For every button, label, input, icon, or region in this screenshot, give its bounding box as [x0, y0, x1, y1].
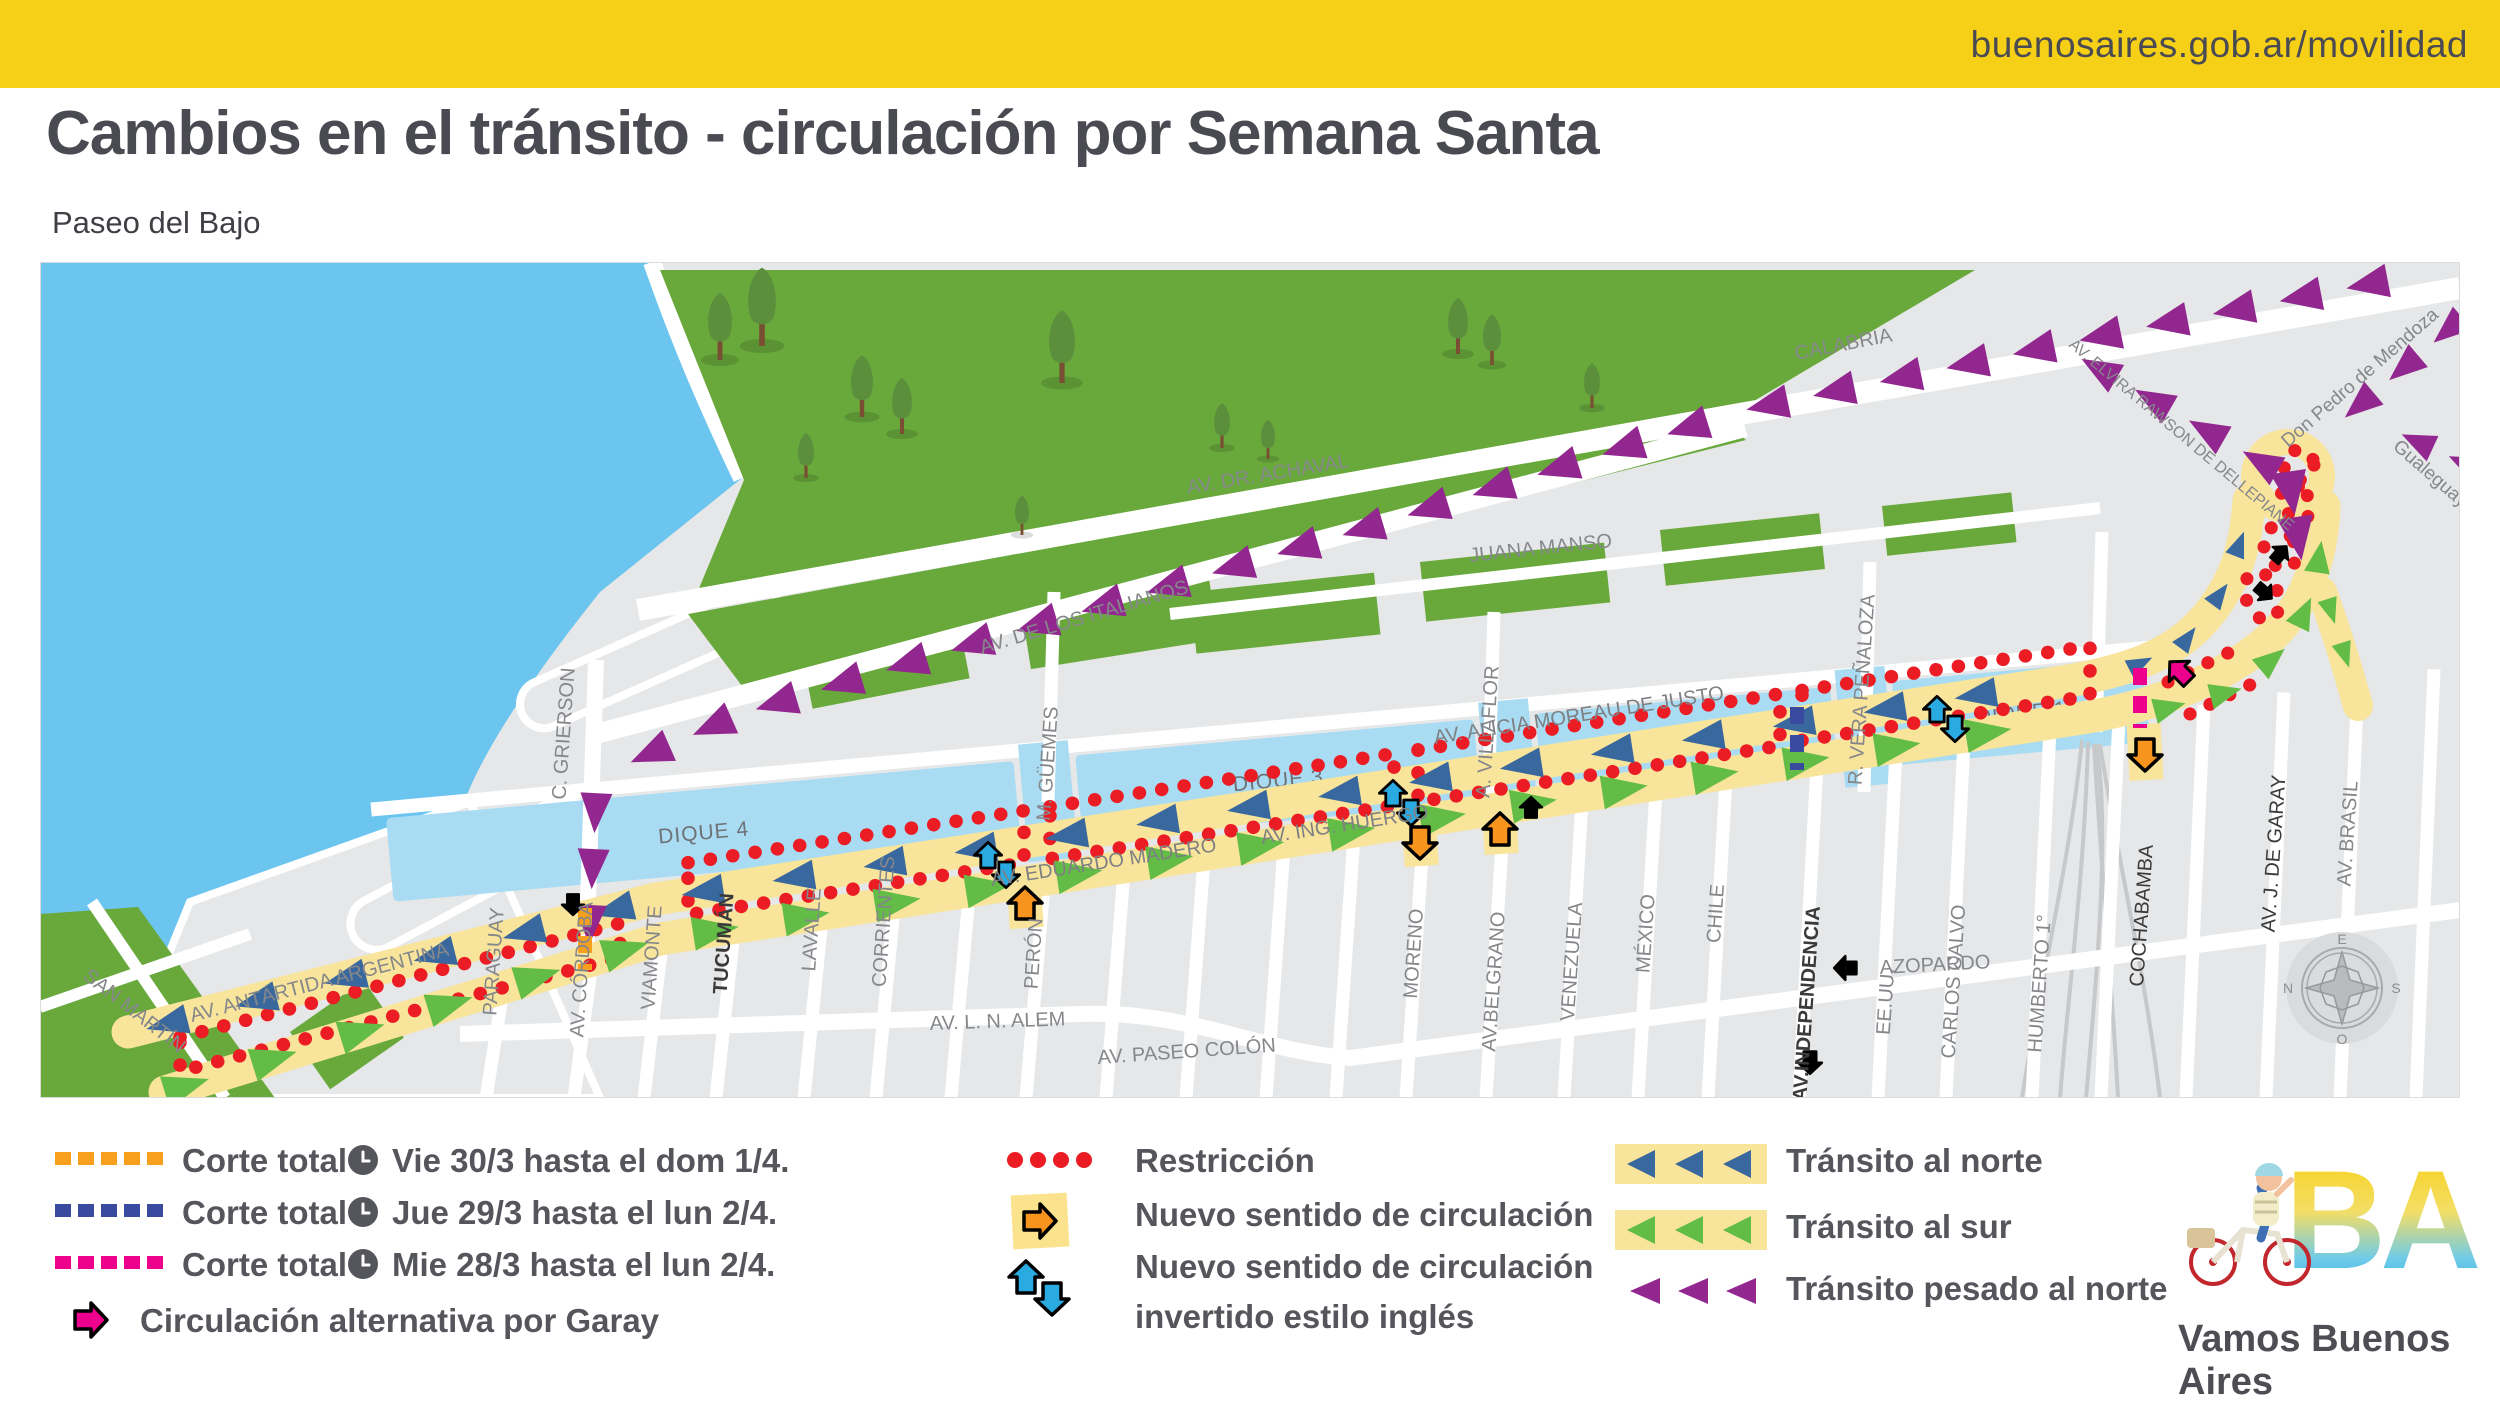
header-url[interactable]: buenosaires.gob.ar/movilidad [1971, 24, 2468, 66]
transit-south-label: Tránsito al sur [1786, 1208, 2012, 1246]
ba-logo: BA [2165, 1150, 2485, 1320]
corte-magenta-swatch [55, 1256, 167, 1269]
clock-icon [345, 1246, 381, 1282]
page-title: Cambios en el tránsito - circulación por… [46, 98, 1599, 169]
corte-orange-swatch [55, 1152, 167, 1165]
ba-letters: BA [2285, 1150, 2478, 1298]
corte-date: Mie 28/3 hasta el lun 2/4. [392, 1246, 775, 1284]
corte-date: Vie 30/3 hasta el dom 1/4. [392, 1142, 789, 1180]
compass-o: O [2337, 1031, 2348, 1047]
transit-north-icon [1615, 1144, 1767, 1184]
compass-e: E [2337, 931, 2346, 947]
transit-south-icon [1615, 1210, 1767, 1250]
restriction-dots-icon [1005, 1148, 1105, 1172]
street-label: CHILE [1703, 883, 1729, 943]
corte-label: Corte total [182, 1142, 347, 1180]
street-label: EE.UU. [1873, 968, 1900, 1036]
english-style-label-2: invertido estilo inglés [1135, 1298, 1474, 1336]
traffic-map: DIQUE 4 DIQUE 3 DIQUE 2 DIQUE 1 [40, 262, 2460, 1098]
restriction-label: Restricción [1135, 1142, 1315, 1180]
logo-tagline: Vamos Buenos Aires [2178, 1318, 2500, 1404]
compass-s: S [2391, 980, 2400, 996]
clock-icon [345, 1194, 381, 1230]
alternative-label: Circulación alternativa por Garay [140, 1302, 659, 1340]
english-style-label-1: Nuevo sentido de circulación [1135, 1248, 1593, 1286]
corte-label: Corte total [182, 1194, 347, 1232]
new-direction-icon [1008, 1190, 1078, 1252]
corte-navy-swatch [55, 1204, 167, 1217]
transit-heavy-label: Tránsito pesado al norte [1786, 1270, 2167, 1308]
corte-date: Jue 29/3 hasta el lun 2/4. [392, 1194, 777, 1232]
page-subtitle: Paseo del Bajo [52, 205, 261, 241]
english-style-icon [1004, 1248, 1080, 1332]
new-direction-label: Nuevo sentido de circulación [1135, 1196, 1593, 1234]
compass-n: N [2283, 980, 2293, 996]
transit-heavy-icon [1622, 1272, 1774, 1308]
transit-north-label: Tránsito al norte [1786, 1142, 2043, 1180]
corte-label: Corte total [182, 1246, 347, 1284]
garay-arrow-icon [68, 1298, 118, 1342]
clock-icon [345, 1142, 381, 1178]
